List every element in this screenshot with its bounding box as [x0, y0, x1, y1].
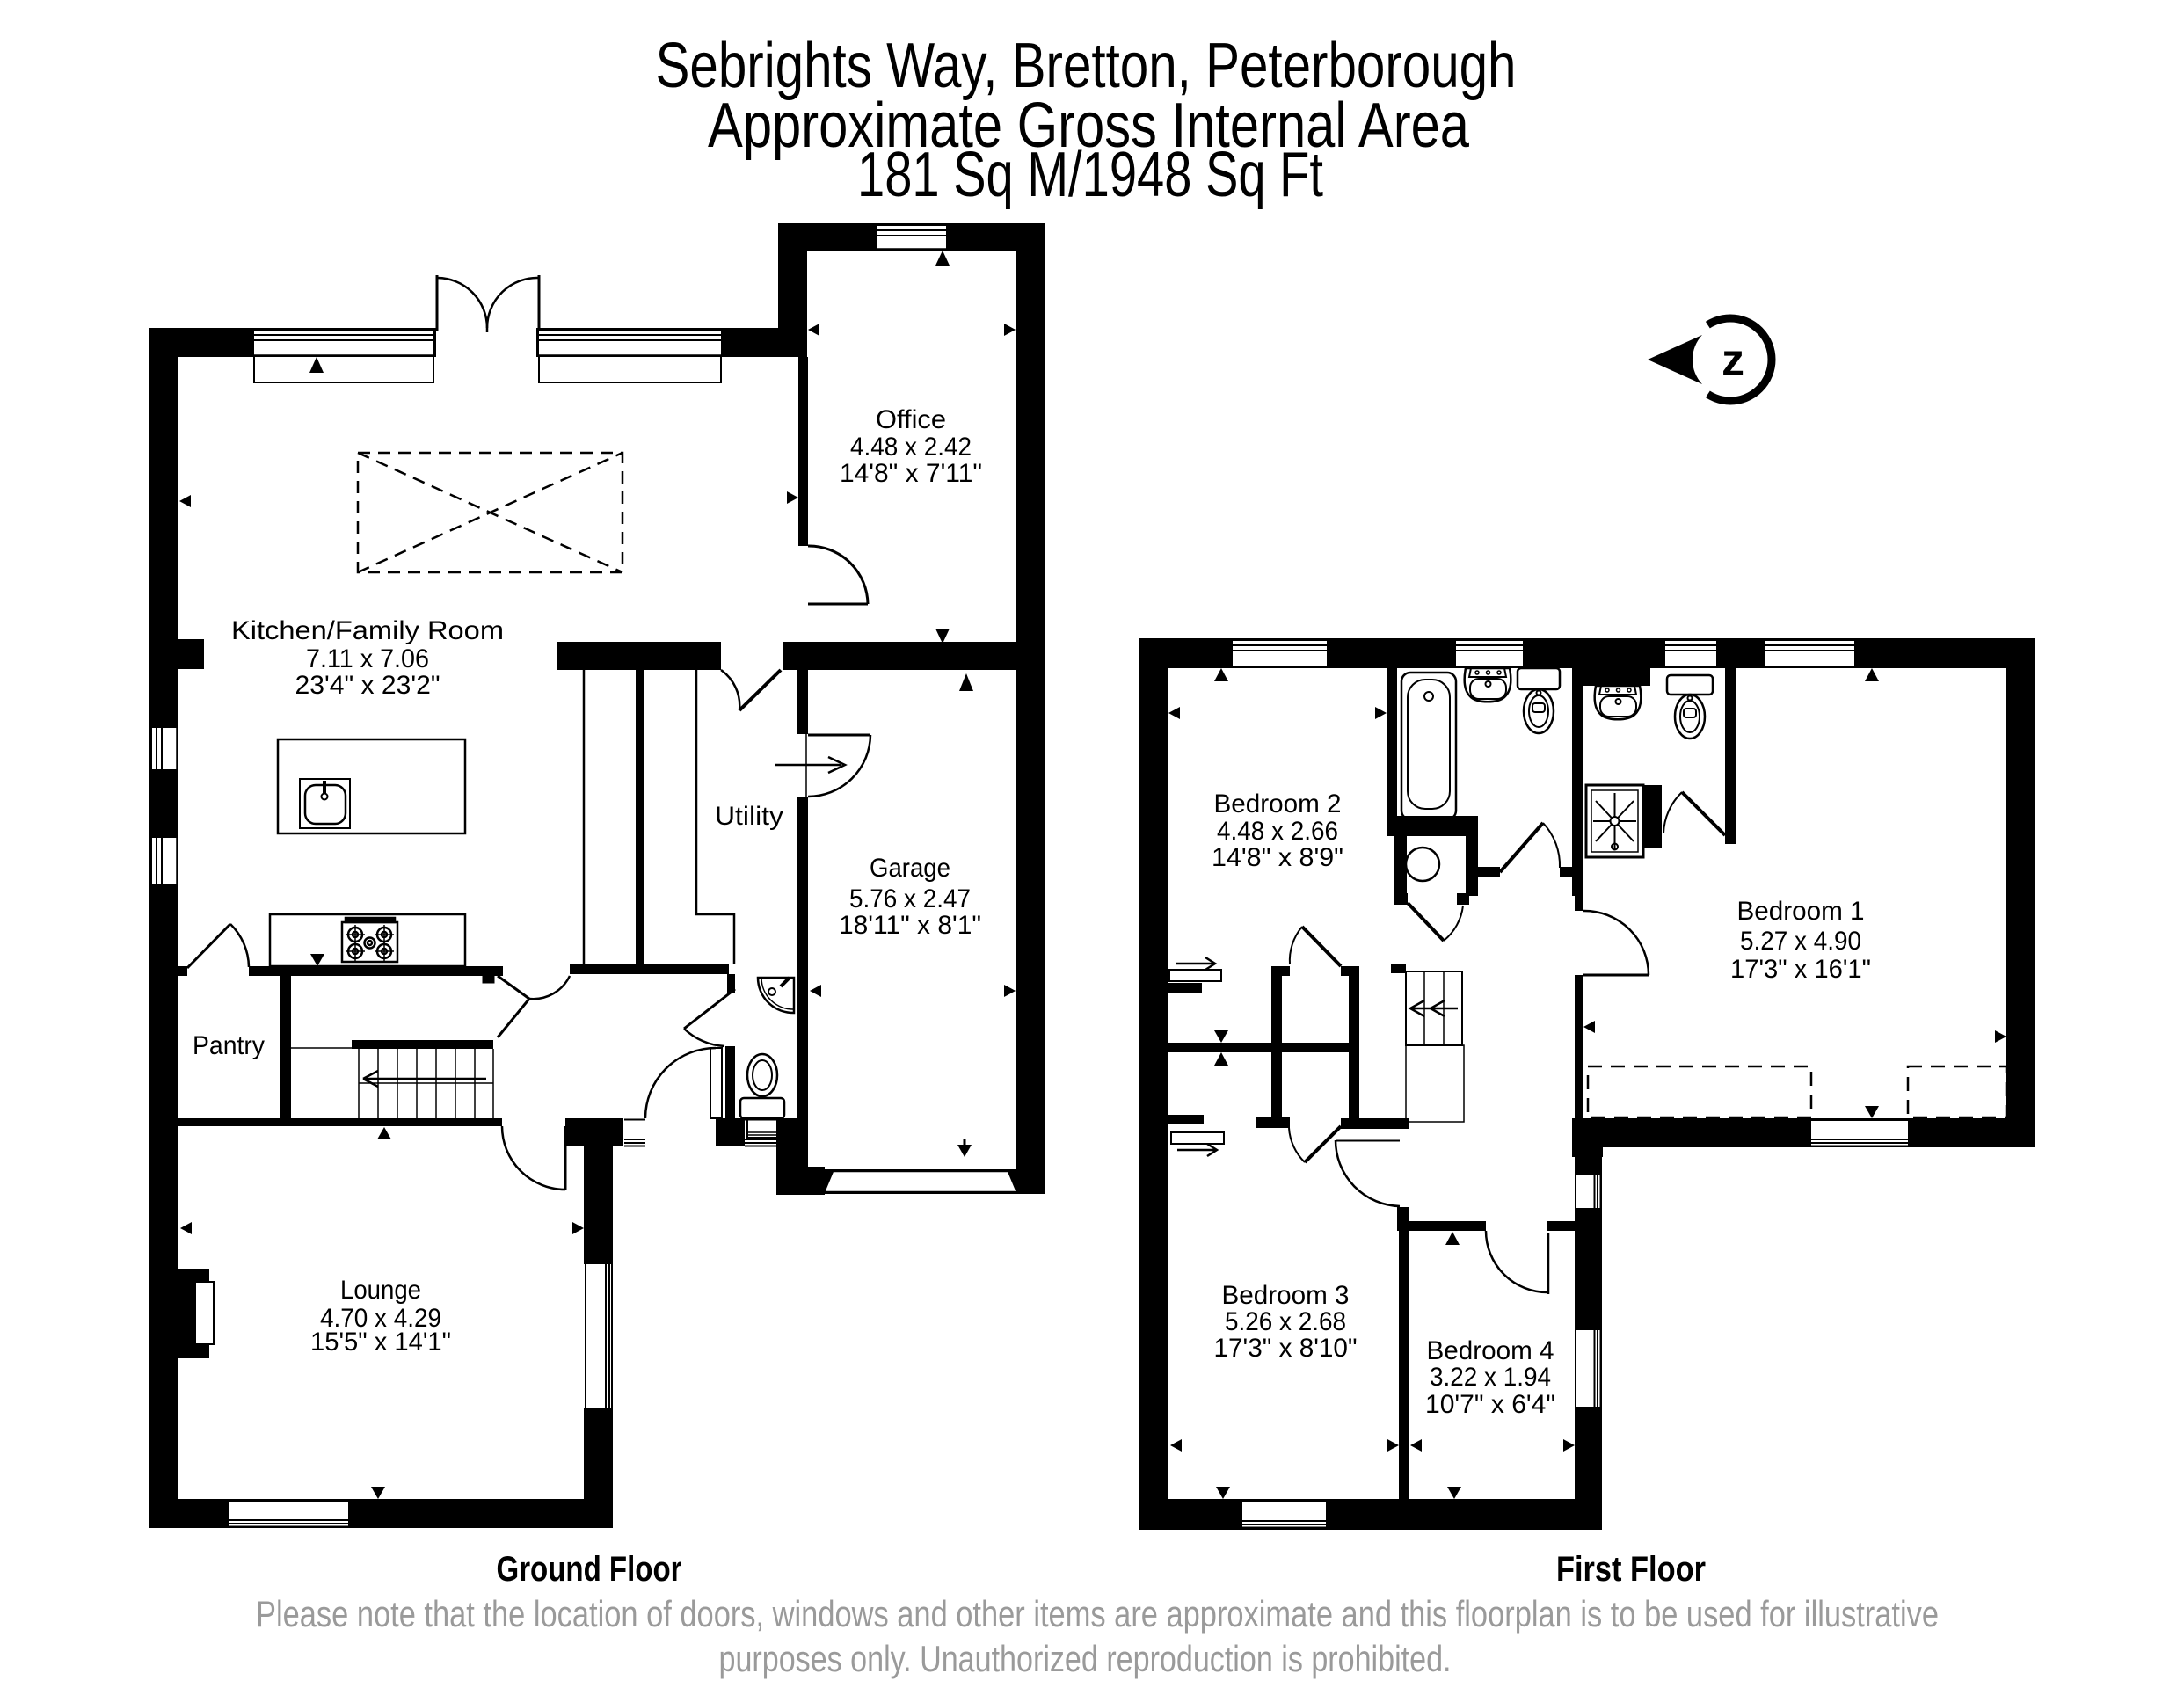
svg-text:Utility: Utility [715, 802, 783, 831]
svg-text:23'4" x 23'2": 23'4" x 23'2" [295, 671, 440, 700]
svg-text:5.27 x 4.90: 5.27 x 4.90 [1740, 927, 1861, 956]
svg-text:Pantry: Pantry [193, 1031, 265, 1060]
svg-text:5.76 x 2.47: 5.76 x 2.47 [849, 884, 971, 913]
svg-text:181 Sq M/1948 Sq Ft: 181 Sq M/1948 Sq Ft [857, 140, 1323, 210]
svg-text:Bedroom 1: Bedroom 1 [1737, 897, 1865, 926]
svg-text:4.48 x 2.42: 4.48 x 2.42 [850, 433, 972, 462]
svg-text:17'3" x 8'10": 17'3" x 8'10" [1214, 1334, 1358, 1363]
svg-text:Bedroom 4: Bedroom 4 [1427, 1336, 1554, 1365]
svg-text:18'11" x 8'1": 18'11" x 8'1" [839, 911, 981, 940]
svg-text:Please note that the location: Please note that the location of doors, … [256, 1593, 1939, 1634]
svg-text:17'3" x 16'1": 17'3" x 16'1" [1730, 955, 1871, 984]
svg-text:First Floor: First Floor [1556, 1550, 1706, 1589]
svg-text:10'7" x 6'4": 10'7" x 6'4" [1425, 1390, 1555, 1419]
svg-text:Ground Floor: Ground Floor [497, 1550, 682, 1589]
svg-text:5.26 x 2.68: 5.26 x 2.68 [1225, 1307, 1346, 1336]
svg-text:Office: Office [876, 405, 946, 434]
svg-text:z: z [1722, 335, 1744, 386]
svg-text:Bedroom 2: Bedroom 2 [1214, 789, 1342, 819]
svg-text:14'8" x 8'9": 14'8" x 8'9" [1212, 843, 1343, 872]
svg-text:14'8" x 7'11": 14'8" x 7'11" [840, 459, 982, 488]
svg-text:purposes only. Unauthorized re: purposes only. Unauthorized reproduction… [719, 1638, 1452, 1679]
svg-text:Kitchen/Family Room: Kitchen/Family Room [231, 616, 504, 645]
svg-text:Bedroom 3: Bedroom 3 [1222, 1281, 1350, 1310]
svg-text:15'5" x 14'1": 15'5" x 14'1" [310, 1328, 451, 1357]
svg-text:Lounge: Lounge [340, 1276, 421, 1305]
svg-text:3.22 x 1.94: 3.22 x 1.94 [1430, 1363, 1551, 1392]
svg-text:7.11 x 7.06: 7.11 x 7.06 [306, 644, 429, 673]
svg-text:Garage: Garage [870, 854, 950, 883]
svg-text:4.48 x 2.66: 4.48 x 2.66 [1217, 817, 1338, 846]
